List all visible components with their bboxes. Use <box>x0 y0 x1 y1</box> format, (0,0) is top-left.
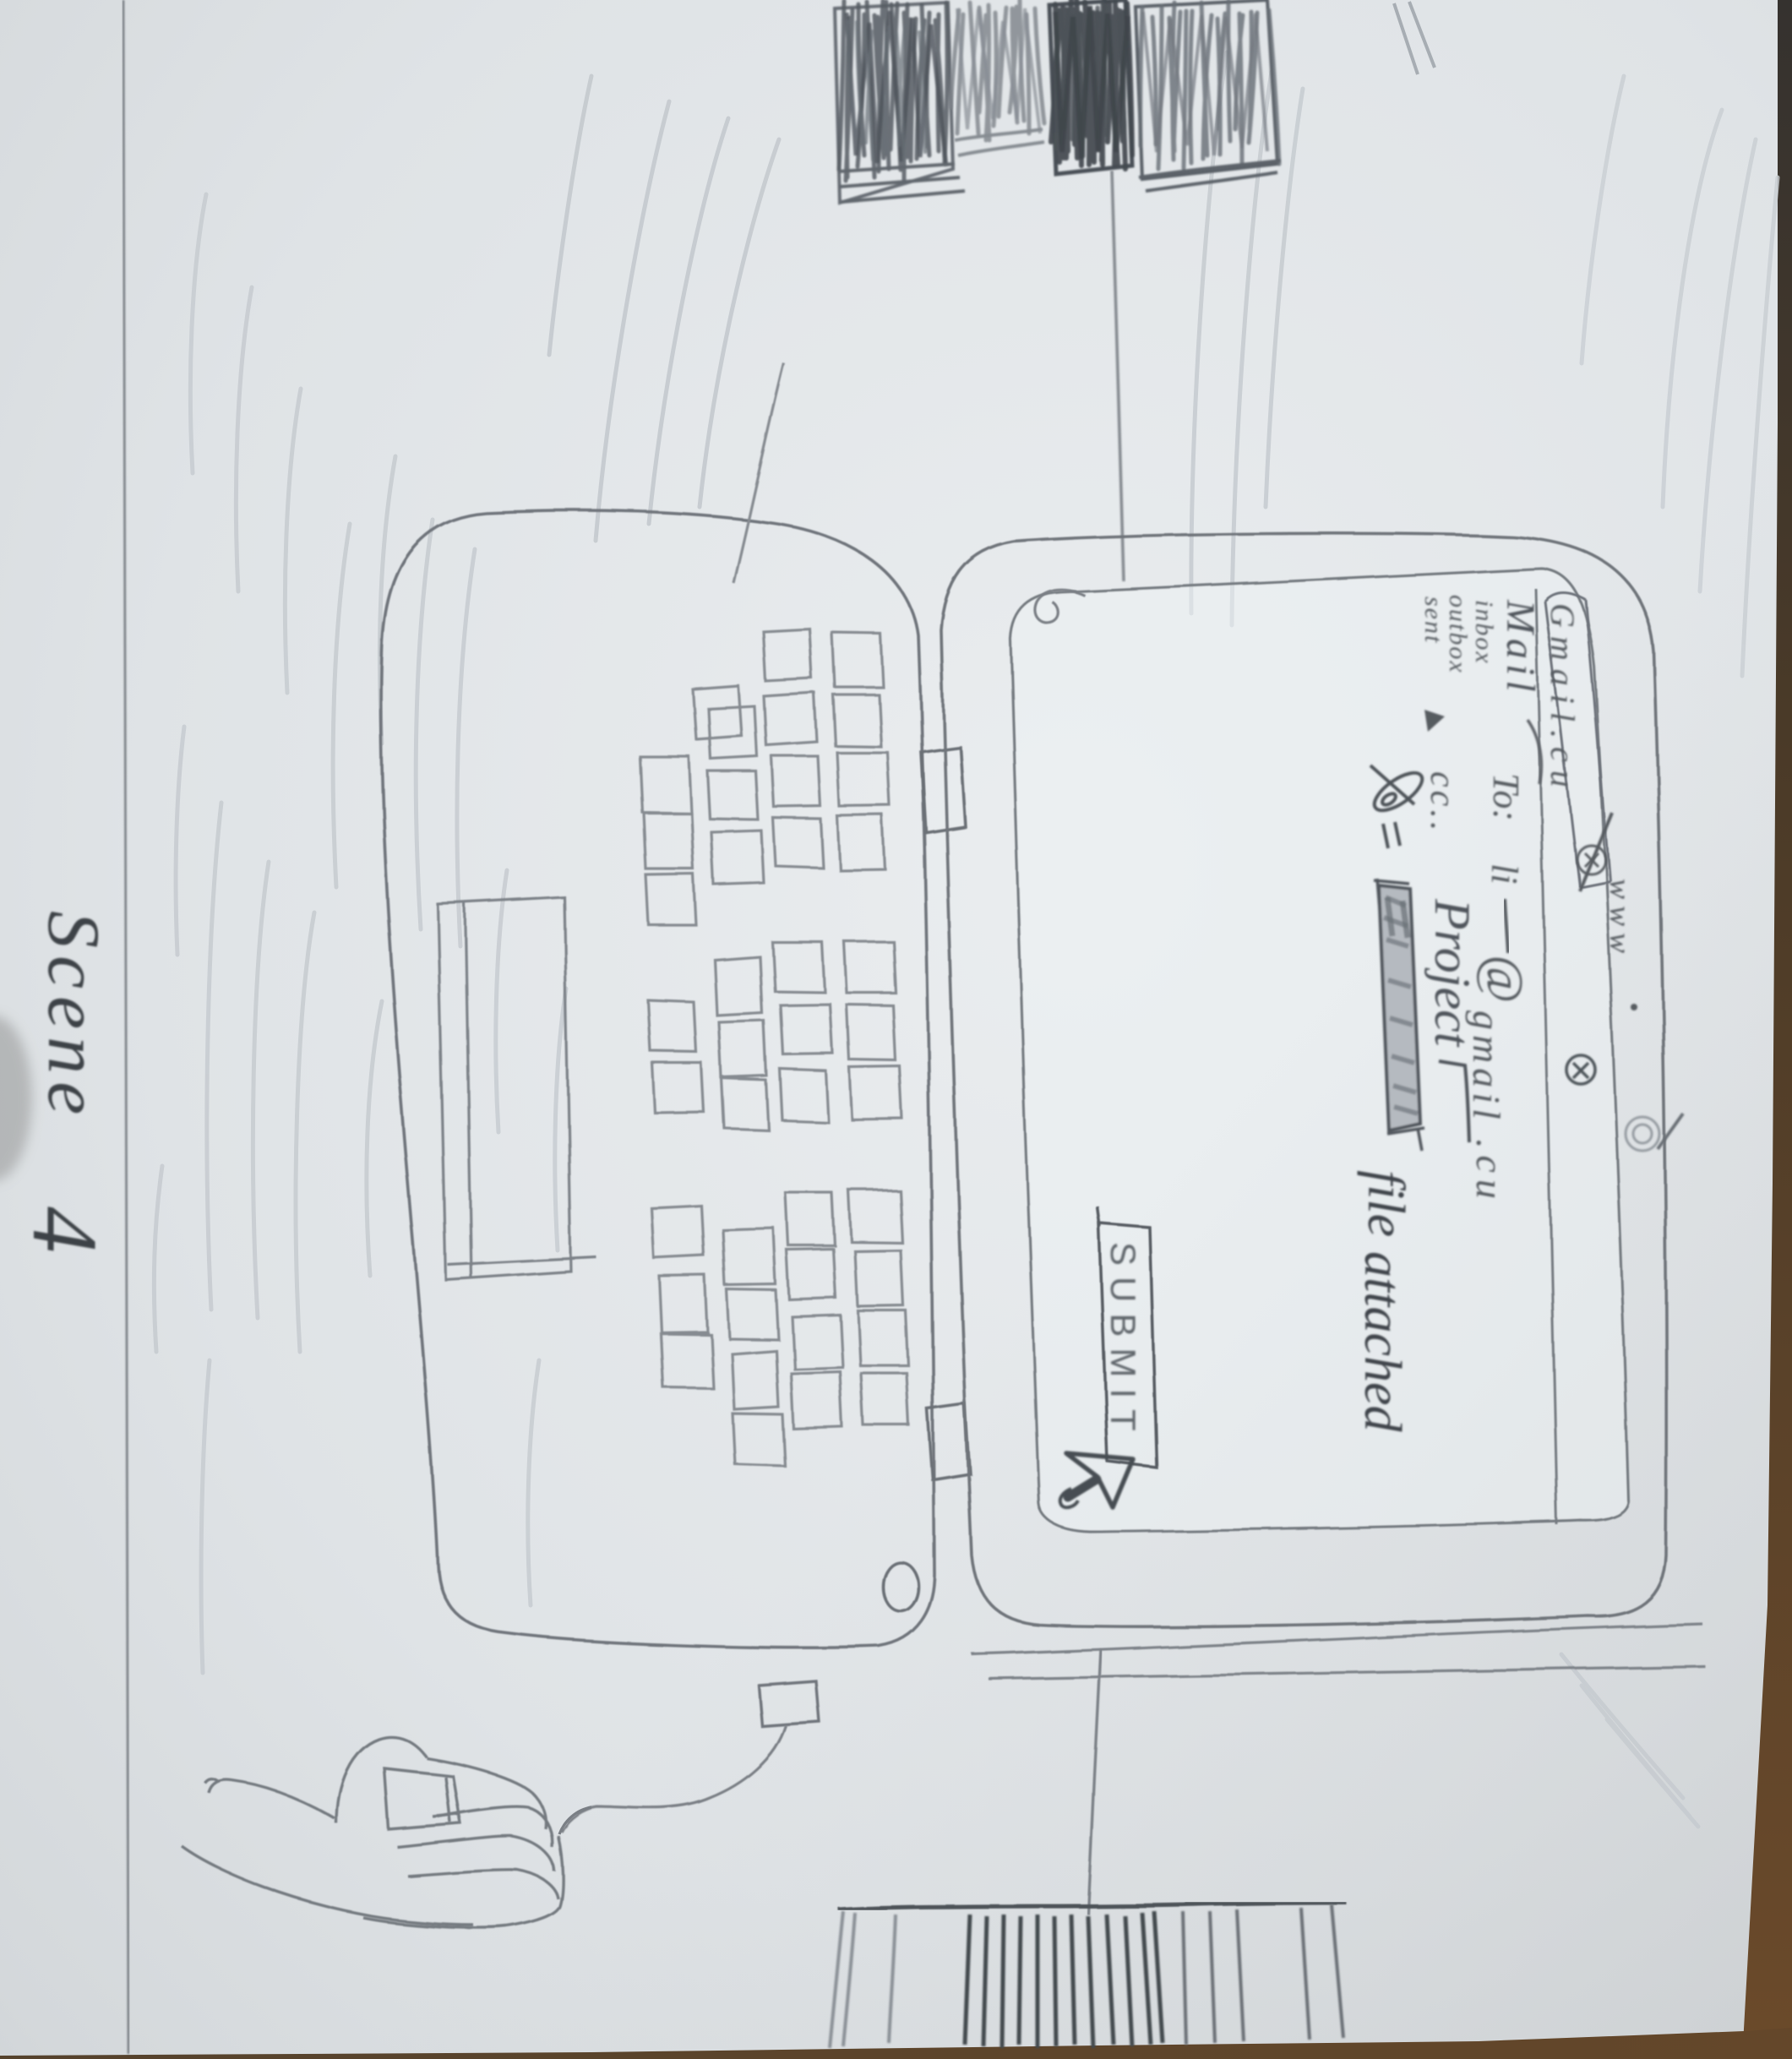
svg-text:Gmail.cu: Gmail.cu <box>1544 603 1582 796</box>
svg-text:file: file <box>1357 1170 1414 1237</box>
svg-text:SUBMIT: SUBMIT <box>1103 1242 1143 1442</box>
svg-text:attached: attached <box>1354 1251 1411 1432</box>
svg-text:sent: sent <box>1419 596 1447 644</box>
svg-text:Mail: Mail <box>1498 599 1543 697</box>
svg-text:cc..: cc.. <box>1423 771 1462 834</box>
svg-text:li: li <box>1484 863 1525 884</box>
svg-text:To:: To: <box>1485 773 1527 821</box>
svg-text:@: @ <box>1475 955 1533 1003</box>
svg-text:Scene: Scene <box>32 911 114 1122</box>
svg-text:www: www <box>1604 879 1637 960</box>
svg-text:Project: Project <box>1424 898 1480 1048</box>
svg-text:4: 4 <box>14 1207 117 1253</box>
svg-text:inbox: inbox <box>1470 600 1498 665</box>
svg-text:.cu: .cu <box>1468 1139 1511 1206</box>
